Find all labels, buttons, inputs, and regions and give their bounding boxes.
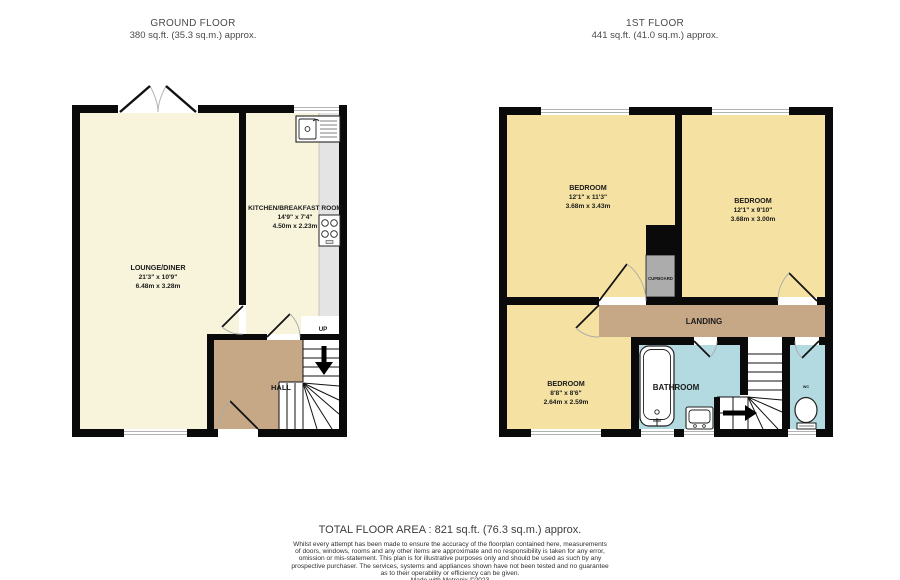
bedroom-1-dims-metric: 3.68m x 3.43m — [566, 203, 611, 210]
disclaimer-line: prospective purchaser. The services, sys… — [0, 563, 900, 570]
first-stairs-area — [748, 345, 782, 429]
floorplan-page: GROUND FLOOR 380 sq.ft. (35.3 sq.m.) app… — [0, 0, 900, 580]
bedroom-3-dims-imperial: 8'8" x 8'6" — [550, 390, 581, 397]
floorplan-drawing: UP LOU — [0, 0, 900, 580]
bathroom-window-1 — [641, 429, 674, 437]
disclaimer-line: omission or mis-statement. This plan is … — [0, 555, 900, 562]
kitchen-dims-imperial: 14'9" x 7'4" — [277, 214, 312, 221]
up-label: UP — [319, 326, 328, 333]
bedroom-3-window — [531, 429, 601, 437]
bedroom-3-dims-metric: 2.64m x 2.59m — [544, 399, 589, 406]
landing-label: LANDING — [686, 317, 722, 326]
disclaimer-line: of doors, windows, rooms and any other i… — [0, 548, 900, 555]
footer: TOTAL FLOOR AREA : 821 sq.ft. (76.3 sq.m… — [0, 524, 900, 580]
hall-label: HALL — [271, 383, 291, 392]
bedroom-1-name-label: BEDROOM — [569, 183, 607, 192]
bedroom-2-room — [682, 115, 825, 297]
wc-label: WC — [803, 385, 810, 389]
bedroom-1-dims-imperial: 12'1" x 11'3" — [569, 194, 607, 201]
lounge-dims-imperial: 21'3" x 10'9" — [139, 274, 178, 281]
bedroom-2-window — [712, 107, 789, 115]
bedroom-2-dims-imperial: 12'1" x 9'10" — [734, 207, 773, 214]
first-floor-plan: BEDROOM 12'1" x 11'3" 3.68m x 3.43m BEDR… — [499, 107, 833, 437]
kitchen-sink-icon — [296, 116, 340, 142]
bathroom-sink-icon — [686, 407, 713, 429]
bathroom-window-2 — [684, 429, 714, 437]
bedroom-3-name-label: BEDROOM — [547, 379, 585, 388]
kitchen-dims-metric: 4.50m x 2.23m — [273, 223, 318, 230]
bedroom-2-dims-metric: 3.68m x 3.00m — [731, 216, 776, 223]
wc-window — [788, 429, 816, 437]
kitchen-window — [294, 105, 339, 113]
ground-floor-plan: UP LOU — [72, 86, 347, 437]
lounge-dims-metric: 6.48m x 3.28m — [136, 283, 181, 290]
lounge-window — [124, 429, 187, 437]
bedroom-2-name-label: BEDROOM — [734, 196, 772, 205]
stove-icon — [319, 215, 340, 246]
kitchen-name-label: KITCHEN/BREAKFAST ROOM — [248, 205, 342, 212]
bedroom-1-window — [541, 107, 629, 115]
disclaimer-line: as to their operability or efficiency ca… — [0, 570, 900, 577]
cupboard-label: CUPBOARD — [648, 276, 673, 281]
bathroom-label: BATHROOM — [653, 383, 700, 392]
toilet-icon — [795, 398, 817, 430]
disclaimer-line: Whilst every attempt has been made to en… — [0, 541, 900, 548]
lounge-name-label: LOUNGE/DINER — [130, 263, 186, 272]
total-floor-area: TOTAL FLOOR AREA : 821 sq.ft. (76.3 sq.m… — [0, 524, 900, 536]
